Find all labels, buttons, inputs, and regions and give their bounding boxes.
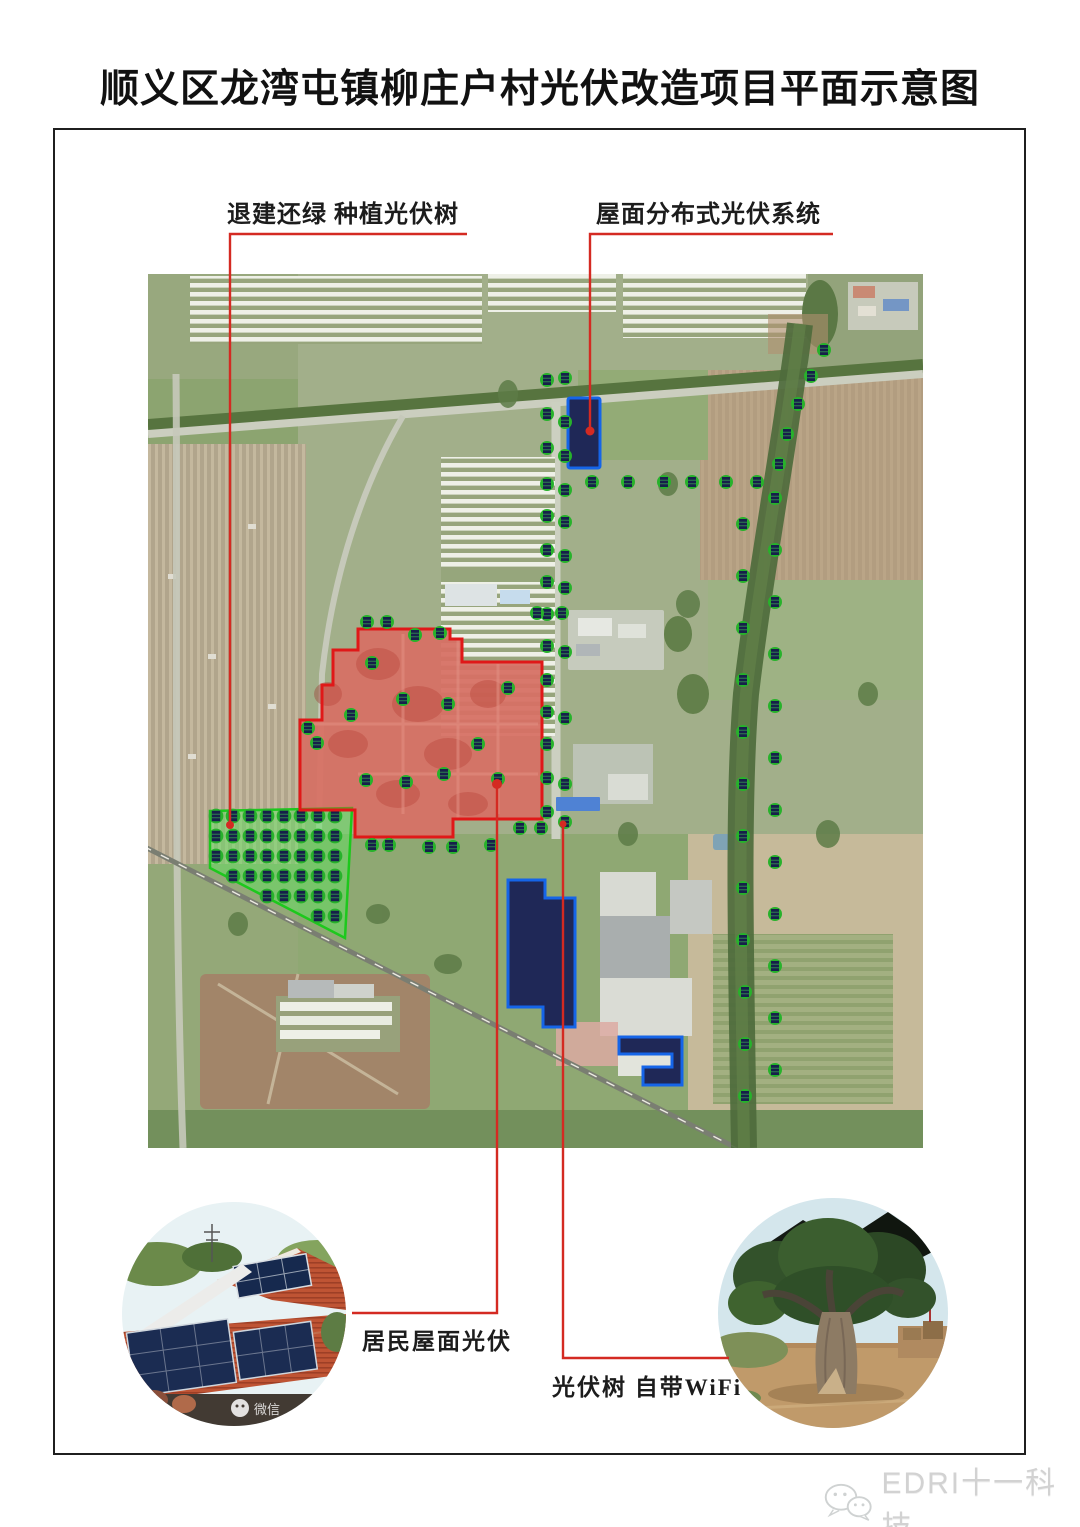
label-green-return: 退建还绿 种植光伏树 [227, 194, 459, 229]
label-rooftop-system: 屋面分布式光伏系统 [596, 194, 821, 229]
rooftop-pv-photo: 微信 [122, 1202, 346, 1426]
label-resident-rooftop-pv: 居民屋面光伏 [362, 1322, 512, 1356]
solar-tree-photo [718, 1198, 948, 1428]
brand-text: EDRI十一科技 [881, 1458, 1080, 1527]
poster-page: 顺义区龙湾屯镇柳庄户村光伏改造项目平面示意图 [0, 0, 1080, 1527]
label-pv-tree-wifi: 光伏树 自带WiFi [552, 1368, 742, 1402]
wechat-icon [820, 1480, 875, 1524]
brand-watermark: EDRI十一科技 [820, 1458, 1080, 1527]
photo-watermark: 微信 [254, 1402, 280, 1417]
satellite-map [148, 274, 923, 1148]
page-title: 顺义区龙湾屯镇柳庄户村光伏改造项目平面示意图 [0, 58, 1080, 114]
